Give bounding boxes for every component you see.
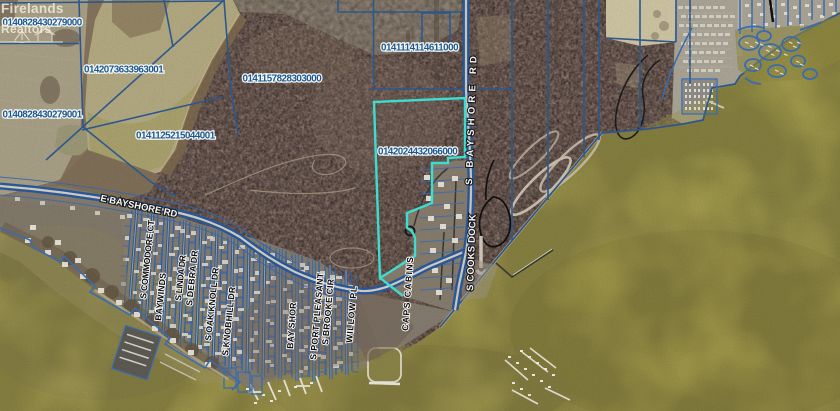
svg-text:Firelands: Firelands [1, 1, 64, 16]
